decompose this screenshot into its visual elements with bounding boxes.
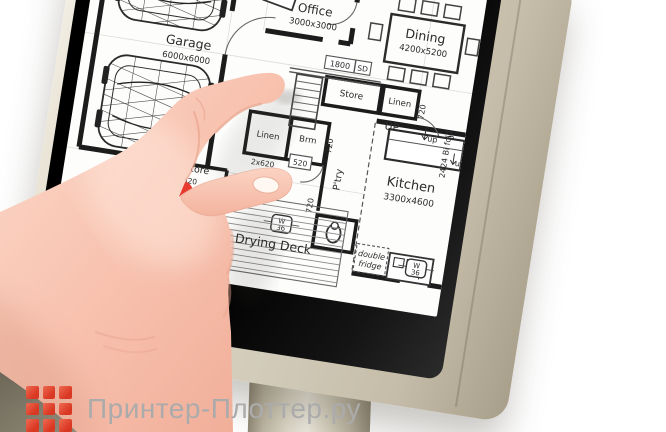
garage-label: Garage <box>165 31 213 53</box>
svg-text:up: up <box>427 134 438 144</box>
printer-plotter-logo-icon <box>26 386 72 432</box>
watermark: Принтер-Плоттер.ру <box>26 386 361 432</box>
door-width-label-2: 720 <box>324 138 335 155</box>
fridge: double fridge <box>353 243 389 276</box>
pantry-label: P'try <box>331 168 345 191</box>
bathroom-label: Brm <box>298 134 317 147</box>
linen-top-label: Linen <box>387 97 411 110</box>
linen-bottom-label: Linen <box>256 129 280 142</box>
svg-text:36: 36 <box>410 268 421 277</box>
touchscreen-monitor: 1800 SD Garage 6000x6000 Office 3000x300… <box>11 0 574 423</box>
watermark-text: Принтер-Плоттер.ру <box>87 393 361 425</box>
office-label: Office <box>297 0 334 19</box>
store-top-label: Store <box>339 89 365 103</box>
sliding-door-tag-label: SD <box>357 63 369 74</box>
office-desk <box>262 0 302 11</box>
door-width-label-1: 720 <box>416 104 427 121</box>
double-door-label: 2x620 <box>250 157 275 170</box>
product-photo: 1800 SD Garage 6000x6000 Office 3000x300… <box>0 0 666 432</box>
